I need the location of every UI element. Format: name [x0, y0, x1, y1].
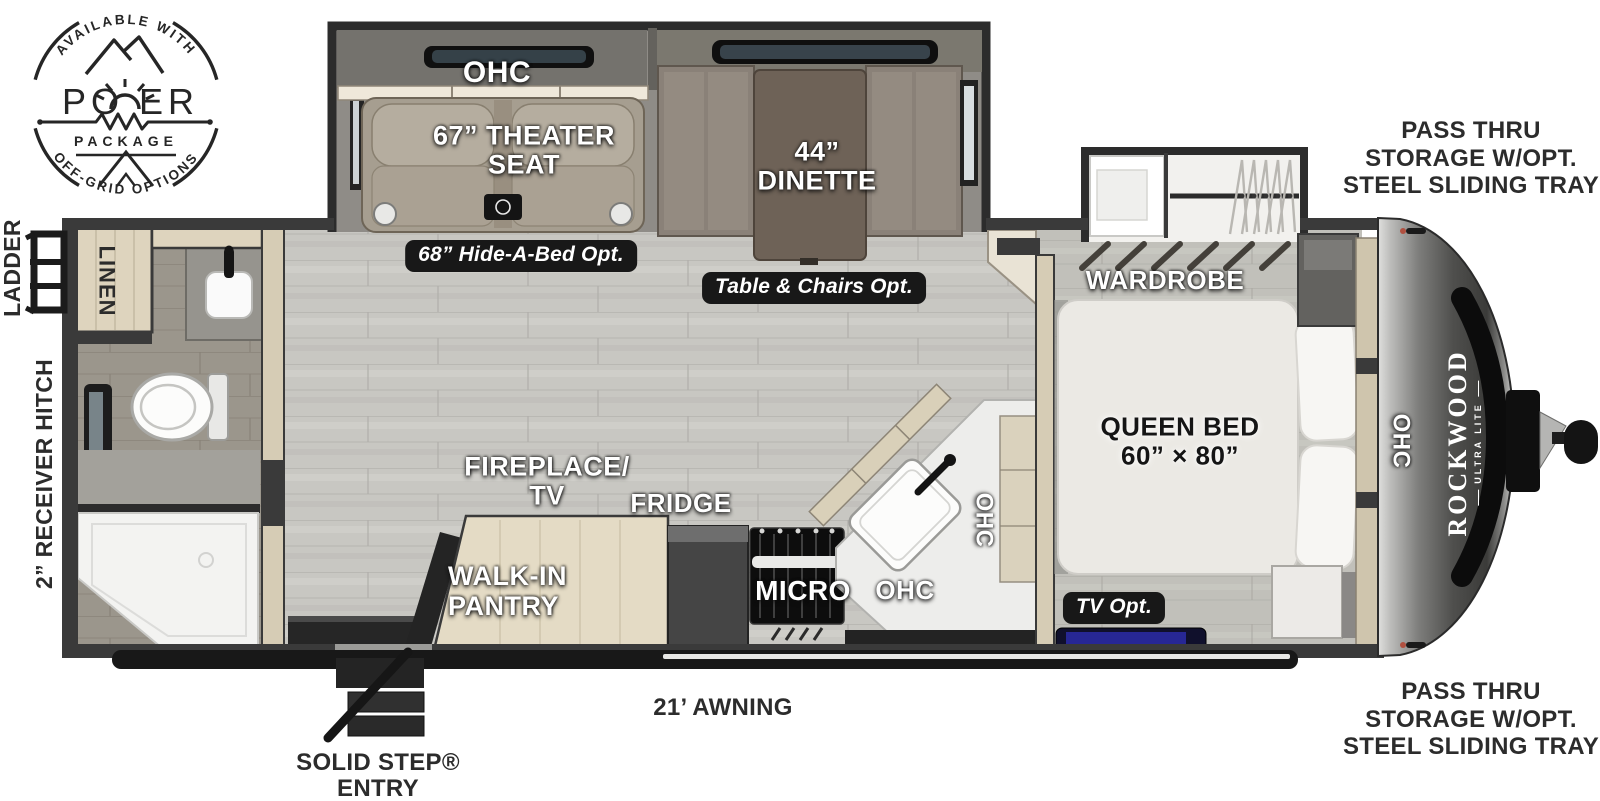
- wardrobe-label: WARDROBE: [1086, 267, 1245, 295]
- logo-rule: [1478, 490, 1479, 506]
- walk-in-pantry-label: WALK-IN PANTRY: [448, 561, 618, 621]
- clearance-light: [1400, 642, 1406, 648]
- power-package-badge: AVAILABLE WITH OFF-GRID OPTIONS PO ER PA…: [35, 12, 217, 197]
- dinette-label: 44” DINETTE: [757, 137, 877, 194]
- ohc-theater-label: OHC: [463, 57, 531, 89]
- queen-bed-label: QUEEN BED 60” × 80”: [1095, 412, 1265, 469]
- micro-label: MICRO: [755, 576, 851, 606]
- kitchen-ohc-side: [1000, 416, 1036, 582]
- pass-thru-storage-bottom-label: PASS THRU STORAGE W/OPT. STEEL SLIDING T…: [1340, 678, 1600, 761]
- brand-name: ROCKWOOD: [1445, 349, 1471, 536]
- ladder-icon: [26, 234, 66, 312]
- fridge-box: [668, 526, 748, 650]
- tv-option-label: TV Opt.: [1063, 592, 1165, 624]
- pass-thru-storage-top-label: PASS THRU STORAGE W/OPT. STEEL SLIDING T…: [1340, 117, 1600, 200]
- clearance-light: [1400, 228, 1406, 234]
- badge-power-left: PO: [62, 81, 124, 122]
- logo-rule: [1478, 380, 1479, 396]
- ohc-kitchen-label: OHC: [875, 577, 934, 605]
- fireplace-tv-label: FIREPLACE/ TV: [457, 452, 637, 509]
- linen-label: LINEN: [94, 246, 119, 317]
- floorplan-page: AVAILABLE WITH OFF-GRID OPTIONS PO ER PA…: [0, 0, 1600, 801]
- ohc-kitchen-vertical-label: OHC: [971, 493, 996, 548]
- seat-console: [484, 194, 522, 220]
- cupholder: [610, 203, 632, 225]
- pillow: [1295, 317, 1359, 442]
- badge-package-text: PACKAGE: [74, 133, 178, 149]
- bathroom-door: [262, 460, 284, 526]
- toilet: [132, 374, 228, 440]
- solid-step-entry-label: SOLID STEP® ENTRY: [283, 750, 473, 801]
- tongue-jack-icon: [1506, 390, 1598, 492]
- rockwood-logo: ROCKWOOD ULTRA LITE: [1445, 349, 1483, 536]
- bed-side-cabinet: [1272, 566, 1342, 638]
- mountains-icon: [86, 37, 163, 74]
- table-chairs-option-label: Table & Chairs Opt.: [702, 272, 926, 304]
- theater-seat-label: 67” THEATER SEAT: [424, 121, 624, 178]
- awning-bar: [112, 650, 1298, 669]
- cupholder: [374, 203, 396, 225]
- brand-sub-text: ULTRA LITE: [1474, 402, 1483, 484]
- wardrobe-slideout: [1085, 151, 1304, 242]
- awning-label: 21’ AWNING: [653, 694, 792, 722]
- brand-sub: ULTRA LITE: [1474, 349, 1483, 536]
- badge-power-right: ER: [139, 81, 199, 122]
- entry-steps-icon: [328, 652, 424, 738]
- bathroom-wall: [262, 222, 284, 652]
- bath-sink: [206, 272, 252, 318]
- hide-a-bed-option-label: 68” Hide-A-Bed Opt.: [405, 240, 637, 272]
- pillow: [1295, 445, 1359, 570]
- ladder-label: LADDER: [0, 219, 25, 317]
- ohc-front-label: OHC: [1388, 414, 1413, 469]
- fridge-label: FRIDGE: [630, 490, 731, 518]
- receiver-hitch-label: 2” RECEIVER HITCH: [31, 359, 57, 589]
- bedroom-wall: [1036, 255, 1054, 652]
